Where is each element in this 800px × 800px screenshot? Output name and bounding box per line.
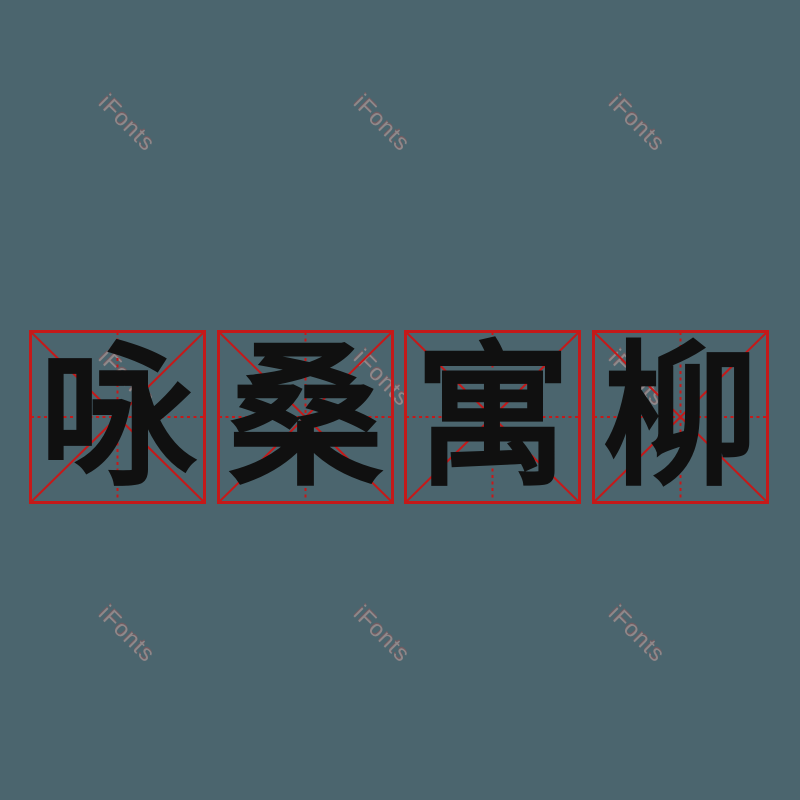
calligraphy-character: 桑 xyxy=(217,330,394,504)
image-canvas: iFontsiFontsiFontsiFontsiFontsiFontsiFon… xyxy=(0,0,800,800)
calligraphy-character: 咏 xyxy=(29,330,206,504)
calligraphy-character: 寓 xyxy=(404,330,581,504)
calligraphy-grid-row: 咏 桑 寓 xyxy=(0,0,800,800)
mizige-square-2: 桑 xyxy=(217,330,394,504)
mizige-square-1: 咏 xyxy=(29,330,206,504)
calligraphy-character: 柳 xyxy=(592,330,769,504)
mizige-square-3: 寓 xyxy=(404,330,581,504)
mizige-square-4: 柳 xyxy=(592,330,769,504)
